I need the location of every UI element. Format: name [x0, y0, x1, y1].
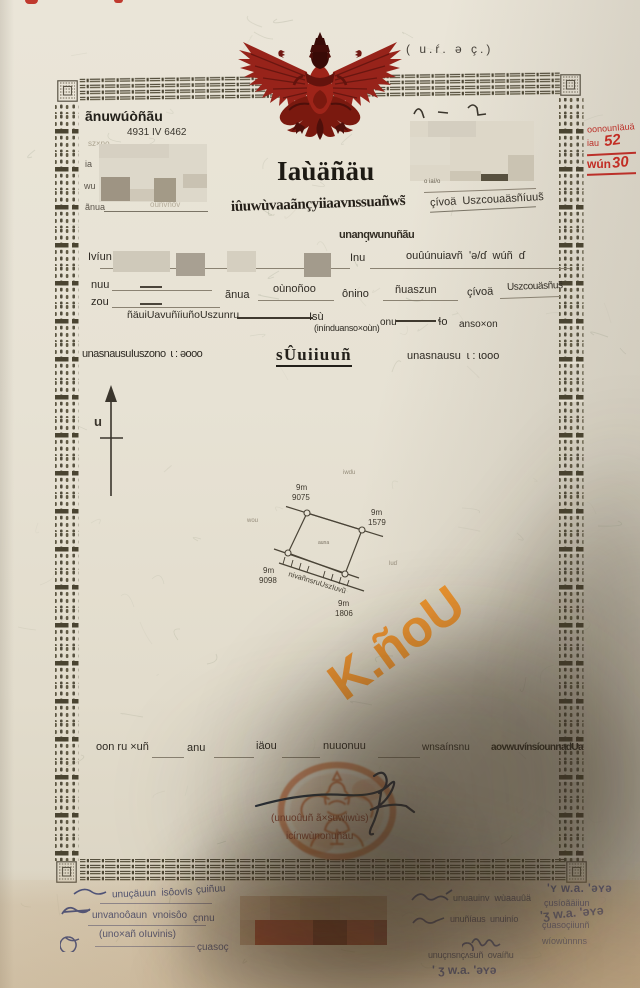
- svg-text:9075: 9075: [292, 493, 310, 502]
- svg-text:u: u: [94, 414, 102, 429]
- svg-text:9m: 9m: [371, 508, 382, 517]
- svg-text:1806: 1806: [335, 609, 353, 618]
- svg-text:9m: 9m: [296, 483, 307, 492]
- svg-text:9m: 9m: [338, 599, 349, 608]
- svg-text:1579: 1579: [368, 518, 386, 527]
- svg-text:auna: auna: [318, 540, 329, 546]
- svg-text:9m: 9m: [263, 566, 274, 575]
- svg-text:9098: 9098: [259, 576, 277, 585]
